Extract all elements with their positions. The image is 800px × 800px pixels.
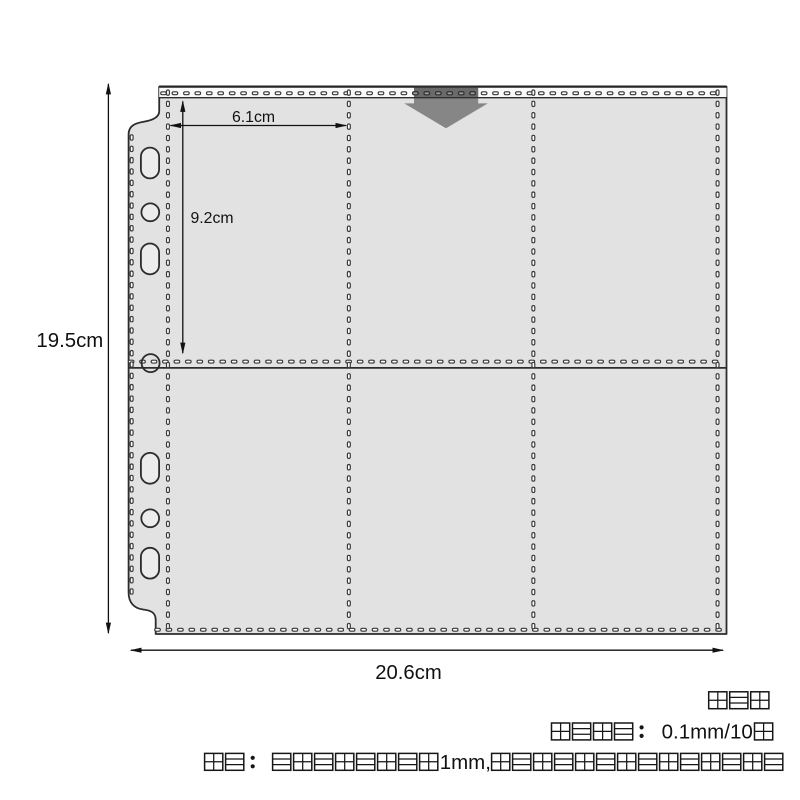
svg-text:0.1mm/10: 0.1mm/10	[662, 721, 753, 744]
svg-text:9.2cm: 9.2cm	[191, 210, 234, 227]
svg-text:20.6cm: 20.6cm	[375, 662, 442, 684]
svg-text:1mm,: 1mm,	[440, 751, 491, 774]
svg-text:6.1cm: 6.1cm	[232, 109, 275, 126]
svg-text:19.5cm: 19.5cm	[36, 330, 103, 352]
